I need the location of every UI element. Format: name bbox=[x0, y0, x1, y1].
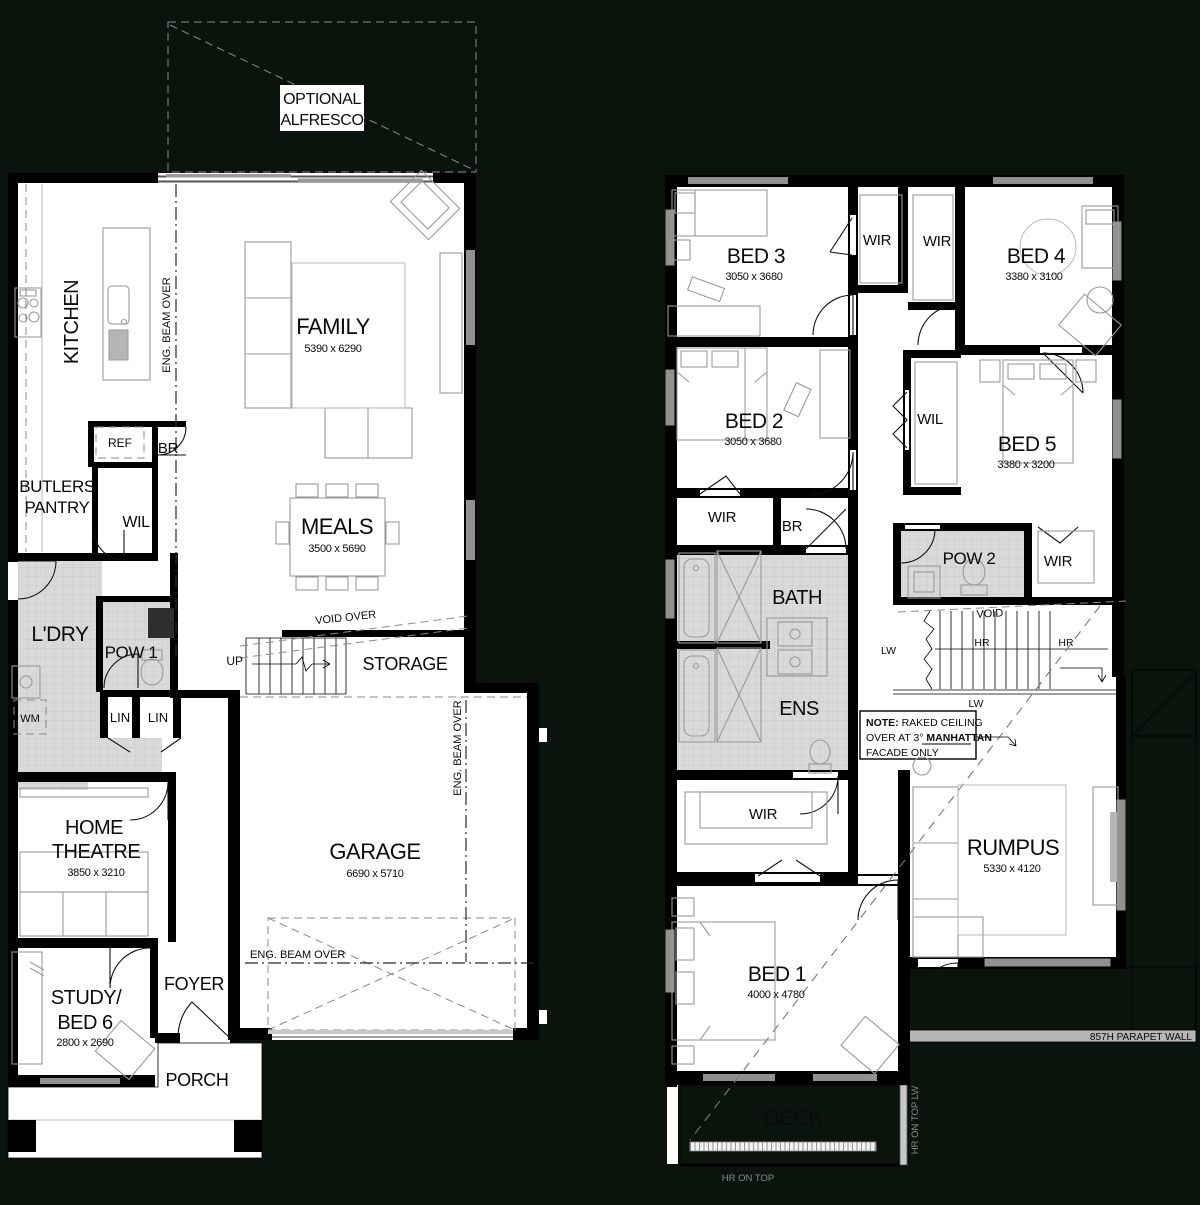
alfresco-label-line1: OPTIONAL bbox=[283, 91, 361, 108]
ground-floor-plan: OPTIONAL ALFRESCO KITCHEN ENG. BEAM OVER… bbox=[8, 22, 547, 1158]
room-label-pow1: POW 1 bbox=[105, 643, 158, 662]
room-label-pow2: POW 2 bbox=[943, 549, 996, 568]
room-label-meals: MEALS bbox=[301, 514, 373, 539]
note-label: NOTE: bbox=[866, 717, 899, 729]
note-line2-bold: MANHATTAN bbox=[926, 732, 992, 744]
room-dims-family: 5390 x 6290 bbox=[304, 343, 361, 355]
room-label-theatre-line2: THEATRE bbox=[52, 841, 141, 863]
room-dims-theatre: 3850 x 3210 bbox=[67, 867, 124, 879]
room-label-theatre-line1: HOME bbox=[65, 817, 123, 839]
room-label-bed3: BED 3 bbox=[727, 245, 785, 268]
room-dims-study: 2800 x 2690 bbox=[56, 1037, 113, 1049]
label-lin2: LIN bbox=[148, 710, 168, 725]
label-wir-bed2: WIR bbox=[708, 509, 737, 526]
label-hr-mid: HR bbox=[974, 637, 990, 649]
room-label-storage: STORAGE bbox=[363, 654, 448, 674]
label-wil-ground: WIL bbox=[122, 514, 150, 531]
room-dims-garage: 6690 x 5710 bbox=[346, 868, 403, 880]
label-butlers-line2: PANTRY bbox=[25, 498, 90, 517]
room-label-rumpus: RUMPUS bbox=[967, 835, 1059, 860]
label-br-upper: BR bbox=[782, 518, 803, 535]
eng-beam-label-2: ENG. BEAM OVER bbox=[452, 700, 464, 795]
room-label-family: FAMILY bbox=[296, 314, 370, 339]
room-dims-bed2: 3050 x 3680 bbox=[724, 436, 781, 448]
label-br-ground: BR bbox=[158, 440, 179, 457]
label-lw-bottom: LW bbox=[969, 698, 984, 710]
room-dims-bed3: 3050 x 3680 bbox=[725, 271, 782, 283]
room-label-study-line2: BED 6 bbox=[57, 1012, 113, 1034]
floorplan-page: OPTIONAL ALFRESCO KITCHEN ENG. BEAM OVER… bbox=[0, 0, 1200, 1200]
room-dims-rumpus: 5330 x 4120 bbox=[983, 863, 1040, 875]
label-hr-on-top-lw: HR ON TOP LW bbox=[910, 1086, 921, 1154]
room-label-porch: PORCH bbox=[165, 1070, 228, 1090]
eng-beam-label-1: ENG. BEAM OVER bbox=[161, 277, 173, 372]
label-ref: REF bbox=[108, 436, 132, 450]
label-butlers-line1: BUTLERS bbox=[19, 477, 95, 496]
alfresco-label-line2: ALFRESCO bbox=[280, 112, 363, 129]
note-line3: FACADE ONLY bbox=[866, 747, 939, 759]
label-wir-bed1: WIR bbox=[749, 806, 778, 823]
room-label-bed1: BED 1 bbox=[748, 963, 806, 986]
label-hr-on-top: HR ON TOP bbox=[722, 1173, 774, 1184]
room-label-ldry: L'DRY bbox=[31, 623, 89, 646]
room-dims-bed5: 3380 x 3200 bbox=[997, 459, 1054, 471]
room-dims-meals: 3500 x 5690 bbox=[308, 543, 365, 555]
label-parapet: 857H PARAPET WALL bbox=[1090, 1032, 1193, 1043]
room-label-bath: BATH bbox=[772, 587, 822, 609]
label-wm: WM bbox=[20, 713, 40, 725]
upper-floor-plan: NOTE: RAKED CEILING OVER AT 3° MANHATTAN… bbox=[665, 175, 1196, 1184]
room-dims-bed4: 3380 x 3100 bbox=[1005, 271, 1062, 283]
label-wil-upper: WIL bbox=[917, 411, 943, 428]
label-void: VOID bbox=[976, 607, 1004, 620]
svg-text:NOTE: RAKED CEILING: NOTE: RAKED CEILING bbox=[866, 717, 983, 729]
floorplan-drawing: OPTIONAL ALFRESCO KITCHEN ENG. BEAM OVER… bbox=[0, 0, 1200, 1200]
room-label-bed5: BED 5 bbox=[998, 433, 1056, 456]
room-label-ens: ENS bbox=[779, 698, 819, 720]
eng-beam-label-3: ENG. BEAM OVER bbox=[250, 949, 345, 961]
label-hr-right: HR bbox=[1058, 637, 1074, 649]
room-label-bed4: BED 4 bbox=[1007, 245, 1066, 268]
room-label-foyer: FOYER bbox=[164, 974, 224, 994]
room-label-study-line1: STUDY/ bbox=[51, 987, 122, 1009]
label-wir-bed3: WIR bbox=[863, 232, 892, 249]
note-line2-prefix: OVER AT 3° bbox=[866, 732, 926, 744]
room-label-kitchen: KITCHEN bbox=[61, 280, 83, 364]
label-wir-bed4: WIR bbox=[923, 233, 952, 250]
label-lin1: LIN bbox=[110, 710, 130, 725]
label-lw-left: LW bbox=[881, 645, 896, 657]
room-dims-bed1: 4000 x 4780 bbox=[747, 989, 804, 1001]
room-label-deck: DECK bbox=[763, 1105, 823, 1130]
label-up: UP bbox=[226, 654, 243, 668]
room-label-bed2: BED 2 bbox=[725, 410, 783, 433]
label-wir-hall: WIR bbox=[1044, 553, 1073, 570]
svg-text:OVER AT 3° MANHATTAN: OVER AT 3° MANHATTAN bbox=[866, 732, 992, 744]
room-label-garage: GARAGE bbox=[329, 839, 420, 864]
note-line1: RAKED CEILING bbox=[899, 717, 983, 729]
